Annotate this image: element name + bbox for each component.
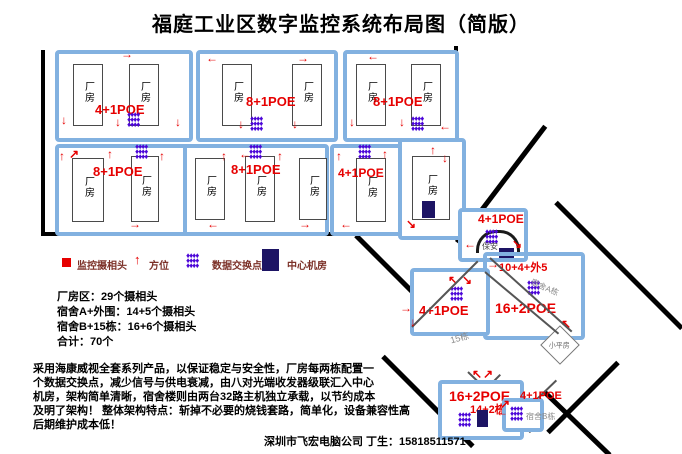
building-label: 厂房 [424, 174, 439, 196]
poe-label: 8+1POE [93, 164, 143, 179]
direction-arrow-icon: ↑ [277, 150, 283, 162]
building-label: 厂房 [137, 81, 152, 103]
description-line: 采用海康威视全套系列产品，以保证稳定与安全性，厂房每两栋配置一 [33, 362, 410, 376]
direction-arrow-icon: ← [439, 120, 451, 132]
direction-arrow-icon: ↓ [442, 152, 448, 164]
direction-arrow-icon: ← [464, 238, 476, 250]
data-switch-point-icon: ♦♦♦♦ ♦♦♦♦ ♦♦♦♦ [411, 116, 423, 131]
direction-arrow-icon: → [297, 52, 309, 64]
direction-arrow-icon: ↓ [399, 116, 405, 128]
building-label: 厂房 [300, 81, 315, 103]
building-label: 厂房 [81, 176, 96, 198]
factory-block-6: 厂房 4+1POE ♦♦♦♦ ♦♦♦♦ ♦♦♦♦ ↑ ↑ ← [330, 144, 406, 236]
direction-arrow-icon: ↘ [406, 218, 416, 230]
machine-room-block: 厂房 ↑ ↓ ↘ [398, 138, 466, 240]
description-line: 个数据交换点，减少信号与供电衰减，由八对光端收发器级联汇入中心 [33, 376, 410, 390]
company-footer: 深圳市飞宏电脑公司 丁生：15818511571 [264, 433, 466, 449]
factory-block-5: 厂房 厂房 厂房 8+1POE ♦♦♦♦ ♦♦♦♦ ♦♦♦♦ ↑ ← ↑ ← → [183, 144, 329, 236]
small-hut-label: 小平房 [546, 341, 572, 351]
dorm-b-label: 宿舍B栋 [526, 411, 555, 422]
building-label: 厂房 [203, 175, 218, 197]
direction-arrow-icon: ↘ [512, 238, 522, 250]
factory-block-1: 厂房 厂房 4+1POE ♦♦♦♦ ♦♦♦♦ ♦♦♦♦ → ↓ ↓ ↓ [55, 50, 193, 142]
direction-arrow-icon: ↑ [336, 150, 342, 162]
legend-direction-label: 方位 [149, 257, 169, 272]
building: 厂房 [299, 158, 327, 220]
direction-arrow-icon: ← [239, 148, 251, 160]
direction-arrow-icon: ↑ [221, 150, 227, 162]
legend-camera-label: 监控摄相头 [77, 257, 127, 272]
direction-arrow-icon: ← [207, 218, 219, 230]
direction-arrow-icon: ← [340, 218, 352, 230]
direction-arrow-icon: ← [496, 406, 508, 418]
building-label: 厂房 [253, 175, 268, 197]
direction-arrow-icon: ↑ [107, 148, 113, 160]
direction-arrow-icon: ↑ [59, 150, 65, 162]
building: 厂房 [195, 158, 225, 220]
description-line: 机房，架构简单清晰，宿舍楼则由两台32路主机独立承载，以节约成本 [33, 390, 410, 404]
direction-arrow-icon: ↓ [175, 116, 181, 128]
data-switch-point-icon: ♦♦♦♦ ♦♦♦♦ ♦♦♦♦ [458, 412, 470, 427]
guard-label: 保安 [482, 241, 498, 252]
direction-arrow-icon: ↑ [382, 148, 388, 160]
page-title: 福庭工业区数字监控系统布局图（简版） [0, 8, 682, 37]
direction-arrow-icon: ↓ [61, 114, 67, 126]
center-room-icon [262, 249, 279, 271]
building-15-block: ♦♦♦♦ ♦♦♦♦ ♦♦♦♦ ↖ ↘ 4+1POE [410, 268, 490, 336]
direction-arrow-icon: ↑ [430, 144, 436, 156]
data-switch-point-icon: ♦♦♦♦ ♦♦♦♦ ♦♦♦♦ [186, 253, 198, 268]
camera-icon [62, 258, 71, 267]
factory-block-3: 厂房 厂房 8+1POE ♦♦♦♦ ♦♦♦♦ ♦♦♦♦ ← ↓ ↓ ← [343, 50, 459, 142]
data-switch-point-icon: ♦♦♦♦ ♦♦♦♦ ♦♦♦♦ [510, 406, 522, 421]
direction-arrow-icon: ↓ [238, 118, 244, 130]
camera-stats: 厂房区：29个摄相头 宿舍A+外围：14+5个摄相头 宿舍B+15栋：16+6个… [57, 290, 196, 350]
direction-arrow-icon: ↓ [292, 118, 298, 130]
stats-dorm-a: 宿舍A+外围：14+5个摄相头 [57, 305, 196, 320]
poe-label: 4+1POE [338, 166, 384, 180]
stats-factory: 厂房区：29个摄相头 [57, 290, 196, 305]
direction-arrow-icon: ↓ [349, 116, 355, 128]
boundary-left [41, 50, 45, 236]
legend-center-room-label: 中心机房 [287, 257, 327, 272]
direction-arrow-icon: ← [367, 50, 379, 62]
data-switch-point-icon: ♦♦♦♦ ♦♦♦♦ ♦♦♦♦ [358, 144, 370, 159]
direction-arrow-icon: → [299, 218, 311, 230]
direction-arrow-icon: → [129, 218, 141, 230]
direction-arrow-icon: → [121, 48, 133, 60]
direction-arrow-icon: ← [206, 52, 218, 64]
direction-arrow-icon: ↗ [483, 368, 493, 380]
direction-arrow-icon: ↓ [410, 316, 416, 328]
host-device [477, 410, 488, 427]
data-switch-point-icon: ♦♦♦♦ ♦♦♦♦ ♦♦♦♦ [127, 112, 139, 127]
direction-arrow-icon: ↓ [115, 116, 121, 128]
poe-label: 8+1POE [373, 94, 423, 109]
data-switch-point-icon: ♦♦♦♦ ♦♦♦♦ ♦♦♦♦ [135, 144, 147, 159]
layout-diagram: 福庭工业区数字监控系统布局图（简版） 厂房 厂房 4+1POE ♦♦♦♦ ♦♦♦… [0, 0, 682, 454]
poe-label: 8+1POE [246, 94, 296, 109]
building-label: 厂房 [81, 81, 96, 103]
direction-arrow-icon: ↖ [472, 368, 482, 380]
stats-dorm-b: 宿舍B+15栋：16+6个摄相头 [57, 320, 196, 335]
stats-total: 合计：70个 [57, 335, 196, 350]
description-line: 及明了架构！ 整体架构特点：斩掉不必要的烧钱套路，简单化，设备兼容性高 [33, 404, 410, 418]
center-room-icon [422, 201, 435, 218]
legend-switch-label: 数据交换点 [212, 257, 262, 272]
building-label: 厂房 [230, 81, 245, 103]
description-line: 后期维护成本低！ [33, 418, 410, 432]
factory-block-2: 厂房 厂房 8+1POE ♦♦♦♦ ♦♦♦♦ ♦♦♦♦ ← → ↓ ↓ [196, 50, 338, 142]
building: 厂房 [412, 156, 450, 220]
building-label: 厂房 [306, 175, 321, 197]
road-line [354, 234, 414, 294]
data-switch-point-icon: ♦♦♦♦ ♦♦♦♦ ♦♦♦♦ [250, 116, 262, 131]
poe-label: 8+1POE [231, 162, 281, 177]
direction-icon: ↑ [134, 254, 141, 266]
direction-arrow-icon: ↗ [69, 148, 79, 160]
description-text: 采用海康威视全套系列产品，以保证稳定与安全性，厂房每两栋配置一 个数据交换点，减… [33, 362, 410, 432]
direction-arrow-icon: → [400, 302, 412, 314]
direction-arrow-icon: ↑ [159, 150, 165, 162]
factory-block-4: 厂房 厂房 8+1POE ♦♦♦♦ ♦♦♦♦ ♦♦♦♦ ↑ ↗ ↑ ↑ → [55, 144, 193, 236]
poe-label: 4+1POE [478, 212, 524, 226]
poe-label: 4+1POE [520, 390, 562, 402]
